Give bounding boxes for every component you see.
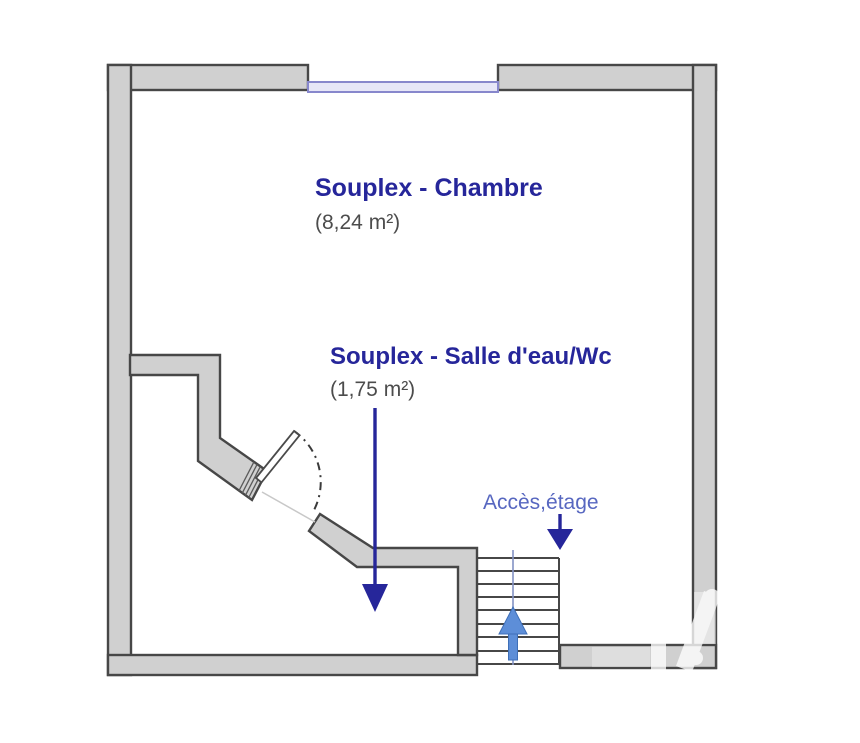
- partition-walls: [130, 355, 477, 655]
- watermark-logo-fragment: [592, 589, 720, 674]
- door-swing-icon: [256, 431, 321, 522]
- room-area-chambre: (8,24 m²): [315, 211, 400, 234]
- door-swing-arc: [294, 431, 321, 512]
- floor-plan-drawing: Souplex - Chambre (8,24 m²) Souplex - Sa…: [0, 0, 860, 743]
- room-label-chambre: Souplex - Chambre: [315, 174, 543, 202]
- wall-right: [693, 65, 716, 668]
- acces-etage-label: Accès,étage: [483, 491, 599, 514]
- room-area-salle-deau: (1,75 m²): [330, 378, 415, 401]
- wall-bottom-left-segment: [108, 655, 477, 675]
- door-leaf: [256, 431, 300, 482]
- acces-etage-pointer-arrow-icon: [547, 514, 573, 550]
- window-icon: [308, 82, 498, 92]
- partition-upper: [130, 355, 267, 500]
- partition-lower: [309, 514, 477, 655]
- stairs-up-arrow-icon: [499, 607, 527, 660]
- room-label-salle-deau: Souplex - Salle d'eau/Wc: [330, 343, 612, 370]
- salle-deau-pointer-arrow-icon: [362, 408, 388, 612]
- floor-plan-screenshot: Souplex - Chambre (8,24 m²) Souplex - Sa…: [0, 0, 860, 743]
- door-threshold: [262, 492, 315, 522]
- wall-top-right-segment: [498, 65, 716, 90]
- wall-top-left-segment: [108, 65, 308, 90]
- wall-left: [108, 65, 131, 675]
- staircase-icon: [477, 550, 559, 665]
